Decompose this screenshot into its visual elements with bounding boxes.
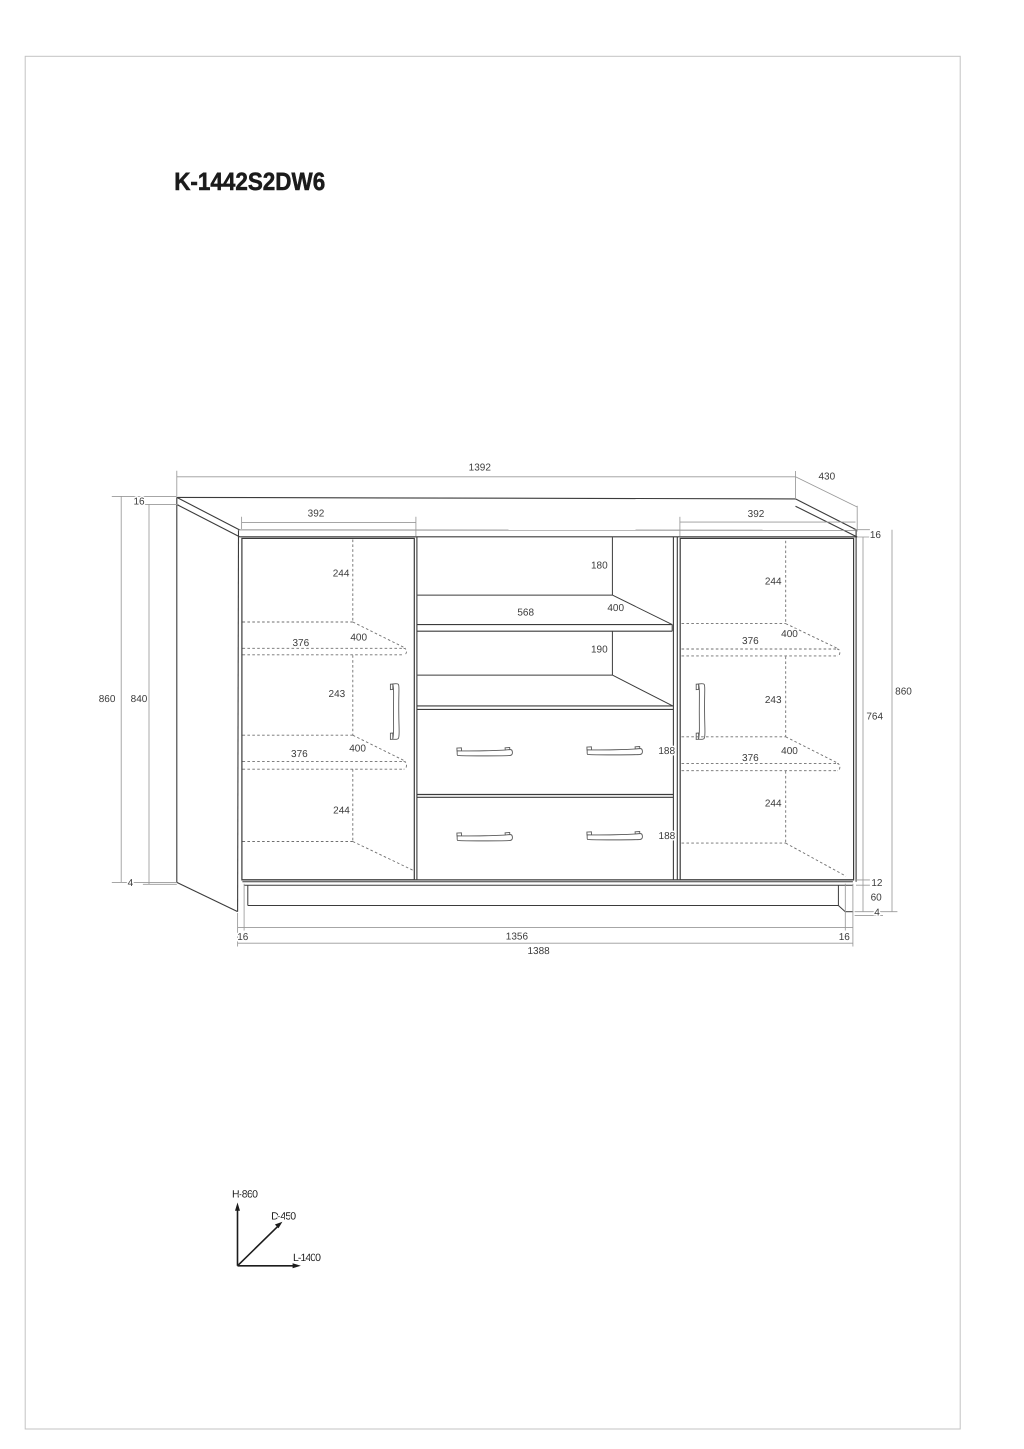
svg-text:860: 860 — [895, 687, 912, 698]
svg-text:188: 188 — [658, 746, 675, 757]
svg-text:60: 60 — [871, 893, 883, 904]
svg-text:1388: 1388 — [527, 946, 550, 957]
svg-text:16: 16 — [237, 932, 249, 943]
svg-text:244: 244 — [333, 568, 350, 579]
svg-text:244: 244 — [765, 799, 782, 810]
svg-text:1356: 1356 — [506, 932, 529, 943]
svg-text:190: 190 — [591, 645, 608, 656]
svg-text:840: 840 — [131, 694, 148, 705]
svg-text:376: 376 — [291, 749, 308, 760]
svg-text:400: 400 — [781, 629, 798, 640]
svg-text:392: 392 — [308, 509, 325, 520]
svg-text:1392: 1392 — [469, 463, 492, 474]
svg-text:243: 243 — [329, 689, 346, 700]
svg-text:764: 764 — [866, 711, 883, 722]
svg-text:180: 180 — [591, 561, 608, 572]
svg-text:12: 12 — [871, 878, 883, 889]
svg-text:16: 16 — [870, 530, 882, 541]
svg-text:D-450: D-450 — [271, 1211, 296, 1223]
svg-text:376: 376 — [742, 753, 759, 764]
svg-text:400: 400 — [781, 746, 798, 757]
svg-text:244: 244 — [333, 806, 350, 817]
svg-text:400: 400 — [607, 603, 624, 614]
svg-text:4: 4 — [874, 908, 880, 919]
svg-text:16: 16 — [839, 932, 851, 943]
svg-text:244: 244 — [765, 577, 782, 588]
svg-text:860: 860 — [99, 694, 116, 705]
svg-text:392: 392 — [748, 509, 765, 520]
svg-text:16: 16 — [133, 497, 145, 508]
svg-text:400: 400 — [349, 743, 366, 754]
svg-text:4: 4 — [128, 878, 134, 889]
svg-text:188: 188 — [659, 831, 676, 842]
svg-text:430: 430 — [818, 472, 835, 483]
svg-text:376: 376 — [742, 636, 759, 647]
svg-text:400: 400 — [350, 633, 367, 644]
svg-text:H-860: H-860 — [232, 1189, 258, 1201]
svg-text:K-1442S2DW6: K-1442S2DW6 — [174, 168, 325, 196]
svg-text:568: 568 — [517, 608, 534, 619]
svg-text:376: 376 — [292, 638, 309, 649]
svg-text:L-1400: L-1400 — [293, 1252, 321, 1264]
svg-text:243: 243 — [765, 695, 782, 706]
